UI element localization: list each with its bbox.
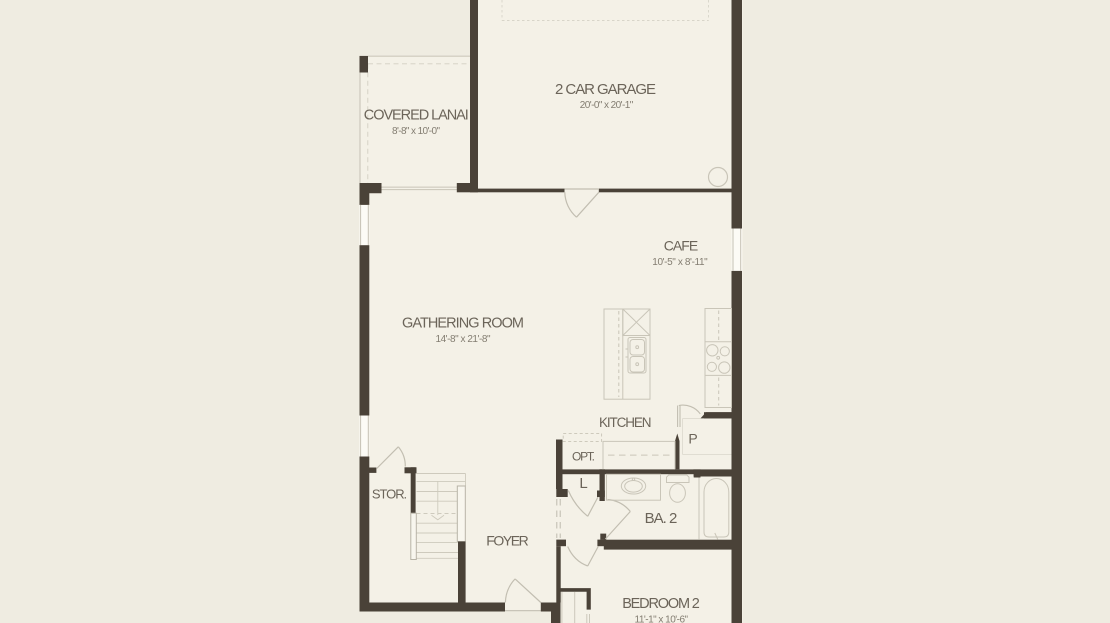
svg-text:OPT.: OPT.: [572, 449, 595, 463]
svg-text:CAFE: CAFE: [664, 238, 699, 254]
svg-text:L: L: [579, 475, 587, 492]
svg-text:FOYER: FOYER: [486, 532, 529, 548]
svg-text:GATHERING ROOM: GATHERING ROOM: [402, 315, 524, 331]
svg-text:STOR.: STOR.: [372, 487, 407, 502]
svg-text:COVERED LANAI: COVERED LANAI: [364, 108, 469, 124]
svg-text:KITCHEN: KITCHEN: [599, 415, 652, 430]
svg-text:10'-5" x 8'-11": 10'-5" x 8'-11": [652, 257, 708, 268]
svg-text:BEDROOM 2: BEDROOM 2: [622, 596, 700, 612]
svg-text:8'-8" x 10'-0": 8'-8" x 10'-0": [392, 126, 440, 137]
svg-text:P: P: [688, 431, 697, 447]
svg-text:20'-0" x 20'-1": 20'-0" x 20'-1": [580, 100, 634, 111]
svg-text:11'-1" x 10'-6": 11'-1" x 10'-6": [635, 615, 689, 623]
svg-text:2 CAR GARAGE: 2 CAR GARAGE: [555, 81, 656, 98]
svg-text:BA. 2: BA. 2: [645, 510, 678, 527]
svg-text:14'-8" x 21'-8": 14'-8" x 21'-8": [436, 334, 491, 345]
